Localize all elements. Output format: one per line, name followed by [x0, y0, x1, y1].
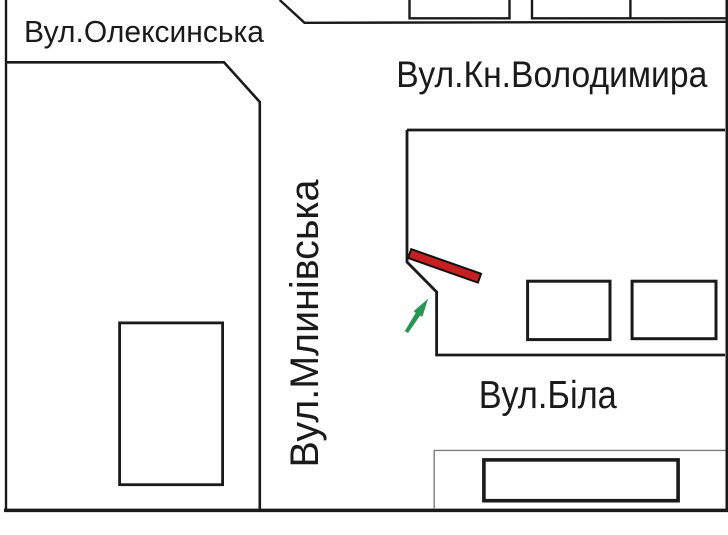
svg-text:Вул.Кн.Володимира: Вул.Кн.Володимира [396, 54, 707, 95]
svg-text:Вул.Олексинська: Вул.Олексинська [24, 14, 265, 49]
svg-text:Вул.Біла: Вул.Біла [479, 374, 617, 417]
svg-text:Вул.Млинівська: Вул.Млинівська [283, 179, 327, 468]
